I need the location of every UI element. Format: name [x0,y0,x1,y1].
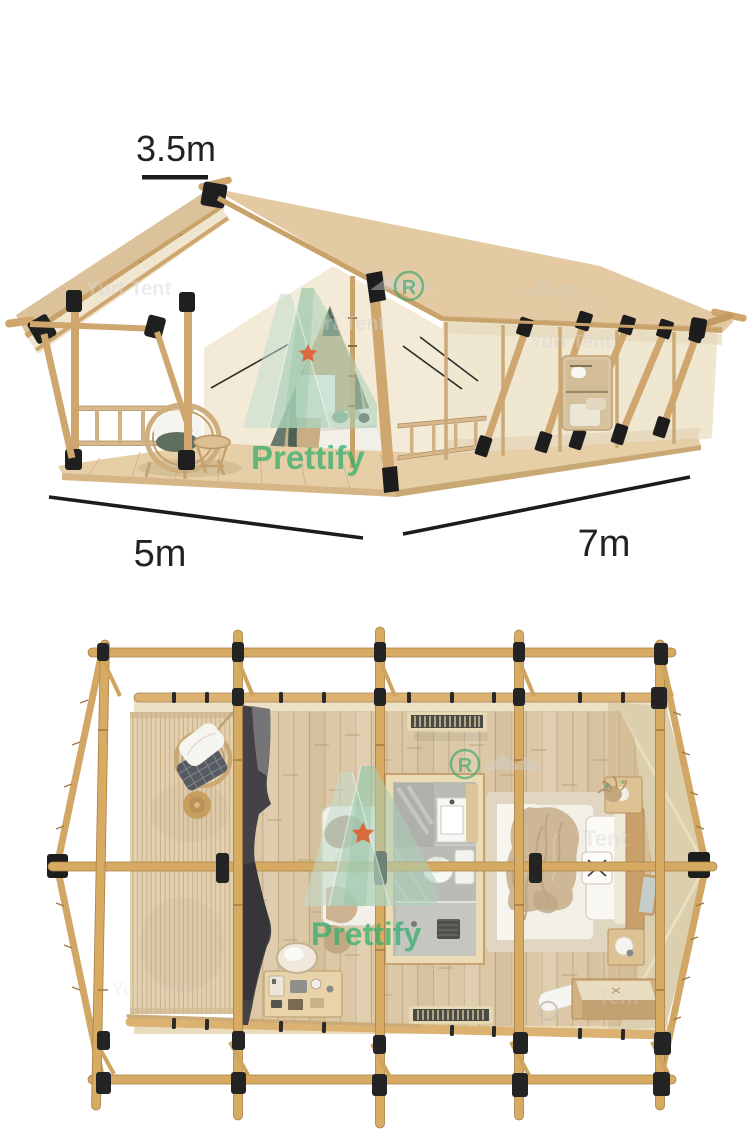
svg-text:5m: 5m [134,533,187,575]
svg-text:R: R [402,277,417,299]
svg-text:Yurt Tent: Yurt Tent [530,332,612,353]
svg-text:R: R [458,755,473,777]
svg-text:Yurt Tent: Yurt Tent [86,278,172,300]
svg-text:Prettify: Prettify [251,439,365,476]
svg-text:Tent: Tent [598,987,639,1009]
svg-text:Tent: Tent [583,826,628,851]
svg-text:Yurt Tent: Yurt Tent [112,979,189,999]
svg-text:7m: 7m [578,523,631,565]
svg-text:Tent: Tent [562,294,599,314]
svg-text:Prettify: Prettify [311,916,421,952]
svg-text:3.5m: 3.5m [136,128,216,169]
